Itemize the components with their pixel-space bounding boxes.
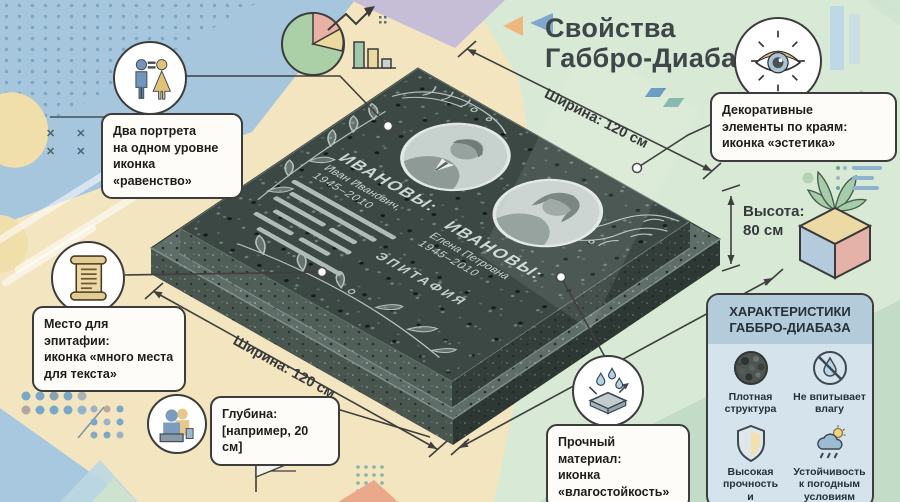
panel-item-no-moisture: Не впитывает влагу: [790, 348, 869, 416]
dimension-height: Высота: 80 см: [743, 203, 804, 241]
callout-decorative: Декоративные элементы по краям: иконка «…: [710, 92, 897, 162]
dense-structure-icon: [731, 348, 771, 388]
callout-epitaph: Место для эпитафии: иконка «много места …: [32, 306, 186, 392]
equality-icon-circle: [113, 41, 187, 115]
panel-item-label: Плотная структура: [725, 391, 777, 416]
depth-icon-circle: [147, 394, 207, 454]
podium-people-icon: [154, 401, 200, 447]
no-moisture-icon: [810, 348, 850, 388]
panel-grid: Плотная структура Не впитывает влагу Выс…: [708, 344, 872, 502]
callout-portraits: Два портрета на одном уровне иконка «рав…: [101, 113, 243, 199]
shield-icon: [731, 423, 771, 463]
callout-depth: Глубина: [например, 20 см]: [210, 396, 340, 466]
panel-item-strength: Высокая прочность и долговечность: [711, 423, 790, 502]
panel-item-label: Не впитывает влагу: [793, 391, 866, 416]
moisture-icon-circle: [572, 355, 644, 427]
eye-icon: [741, 24, 815, 98]
weather-icon: [810, 423, 850, 463]
characteristics-panel: ХАРАКТЕРИСТИКИ ГАББРО-ДИАБАЗА Плотная ст…: [706, 293, 874, 502]
panel-title: ХАРАКТЕРИСТИКИ ГАББРО-ДИАБАЗА: [708, 295, 872, 344]
panel-item-label: Высокая прочность и долговечность: [711, 466, 790, 502]
infographic-canvas: ✕ ✕✕ ✕ ✕ ✕: [0, 0, 900, 502]
panel-item-weather: Устойчивость к погодным условиям: [790, 423, 869, 502]
epitaph-icon-circle: [51, 241, 125, 315]
water-drops-icon: [579, 362, 637, 420]
callout-material: Прочный материал: иконка «влагостойкость…: [546, 424, 690, 502]
panel-item-label: Устойчивость к погодным условиям: [793, 466, 865, 502]
scroll-icon: [59, 249, 117, 307]
man-woman-equals-icon: [121, 49, 179, 107]
panel-item-dense: Плотная структура: [711, 348, 790, 416]
